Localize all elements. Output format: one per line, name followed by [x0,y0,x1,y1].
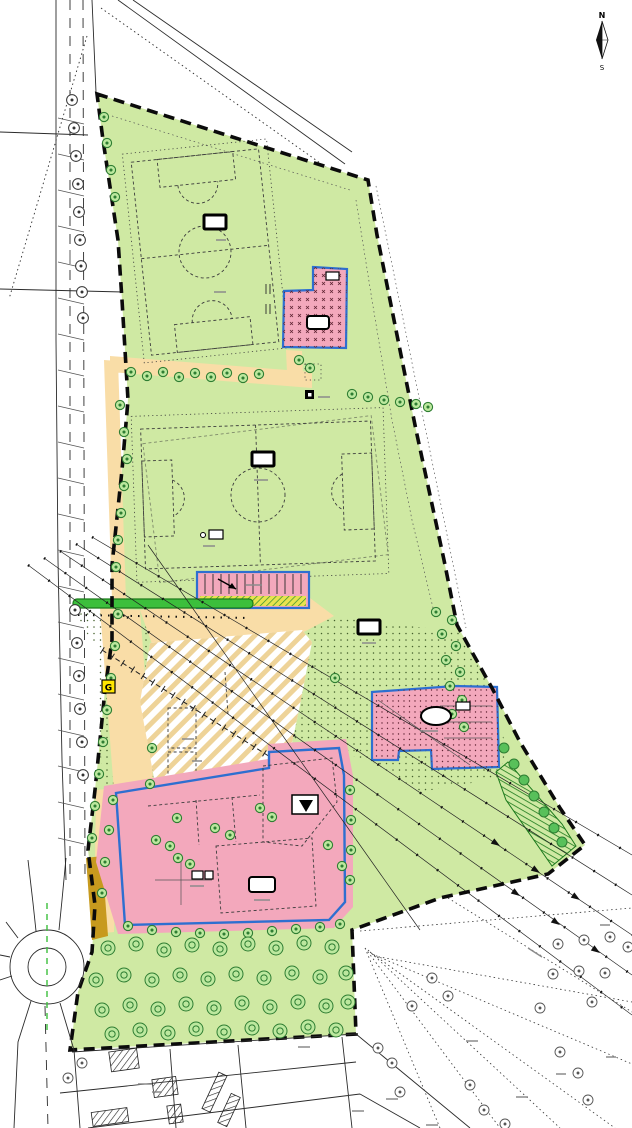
field-main-label-box [252,452,274,466]
field-top-label-box [204,215,226,229]
plot-east-small-box [456,702,470,710]
plot-main-small-box-1 [192,871,203,879]
plot-main-small-box-2 [205,871,213,879]
meadow-label-box [358,620,380,634]
g-marker: G [102,680,115,694]
plot-main-label-box [249,877,275,892]
field-main-dot [201,533,206,538]
g-marker-letter: G [105,684,112,694]
plot-north-small-box [326,272,339,280]
plot-north-label-box [307,316,329,329]
pink-plot-east [372,686,499,769]
b-marker-glyph [308,393,312,397]
site-plan-map: G N S [0,0,632,1128]
south-label: S [600,64,605,72]
north-label: N [599,11,606,20]
field-main-small-box [209,530,223,539]
site-plan-page: G N S [0,0,632,1128]
plot-east-label-oval [421,707,451,725]
